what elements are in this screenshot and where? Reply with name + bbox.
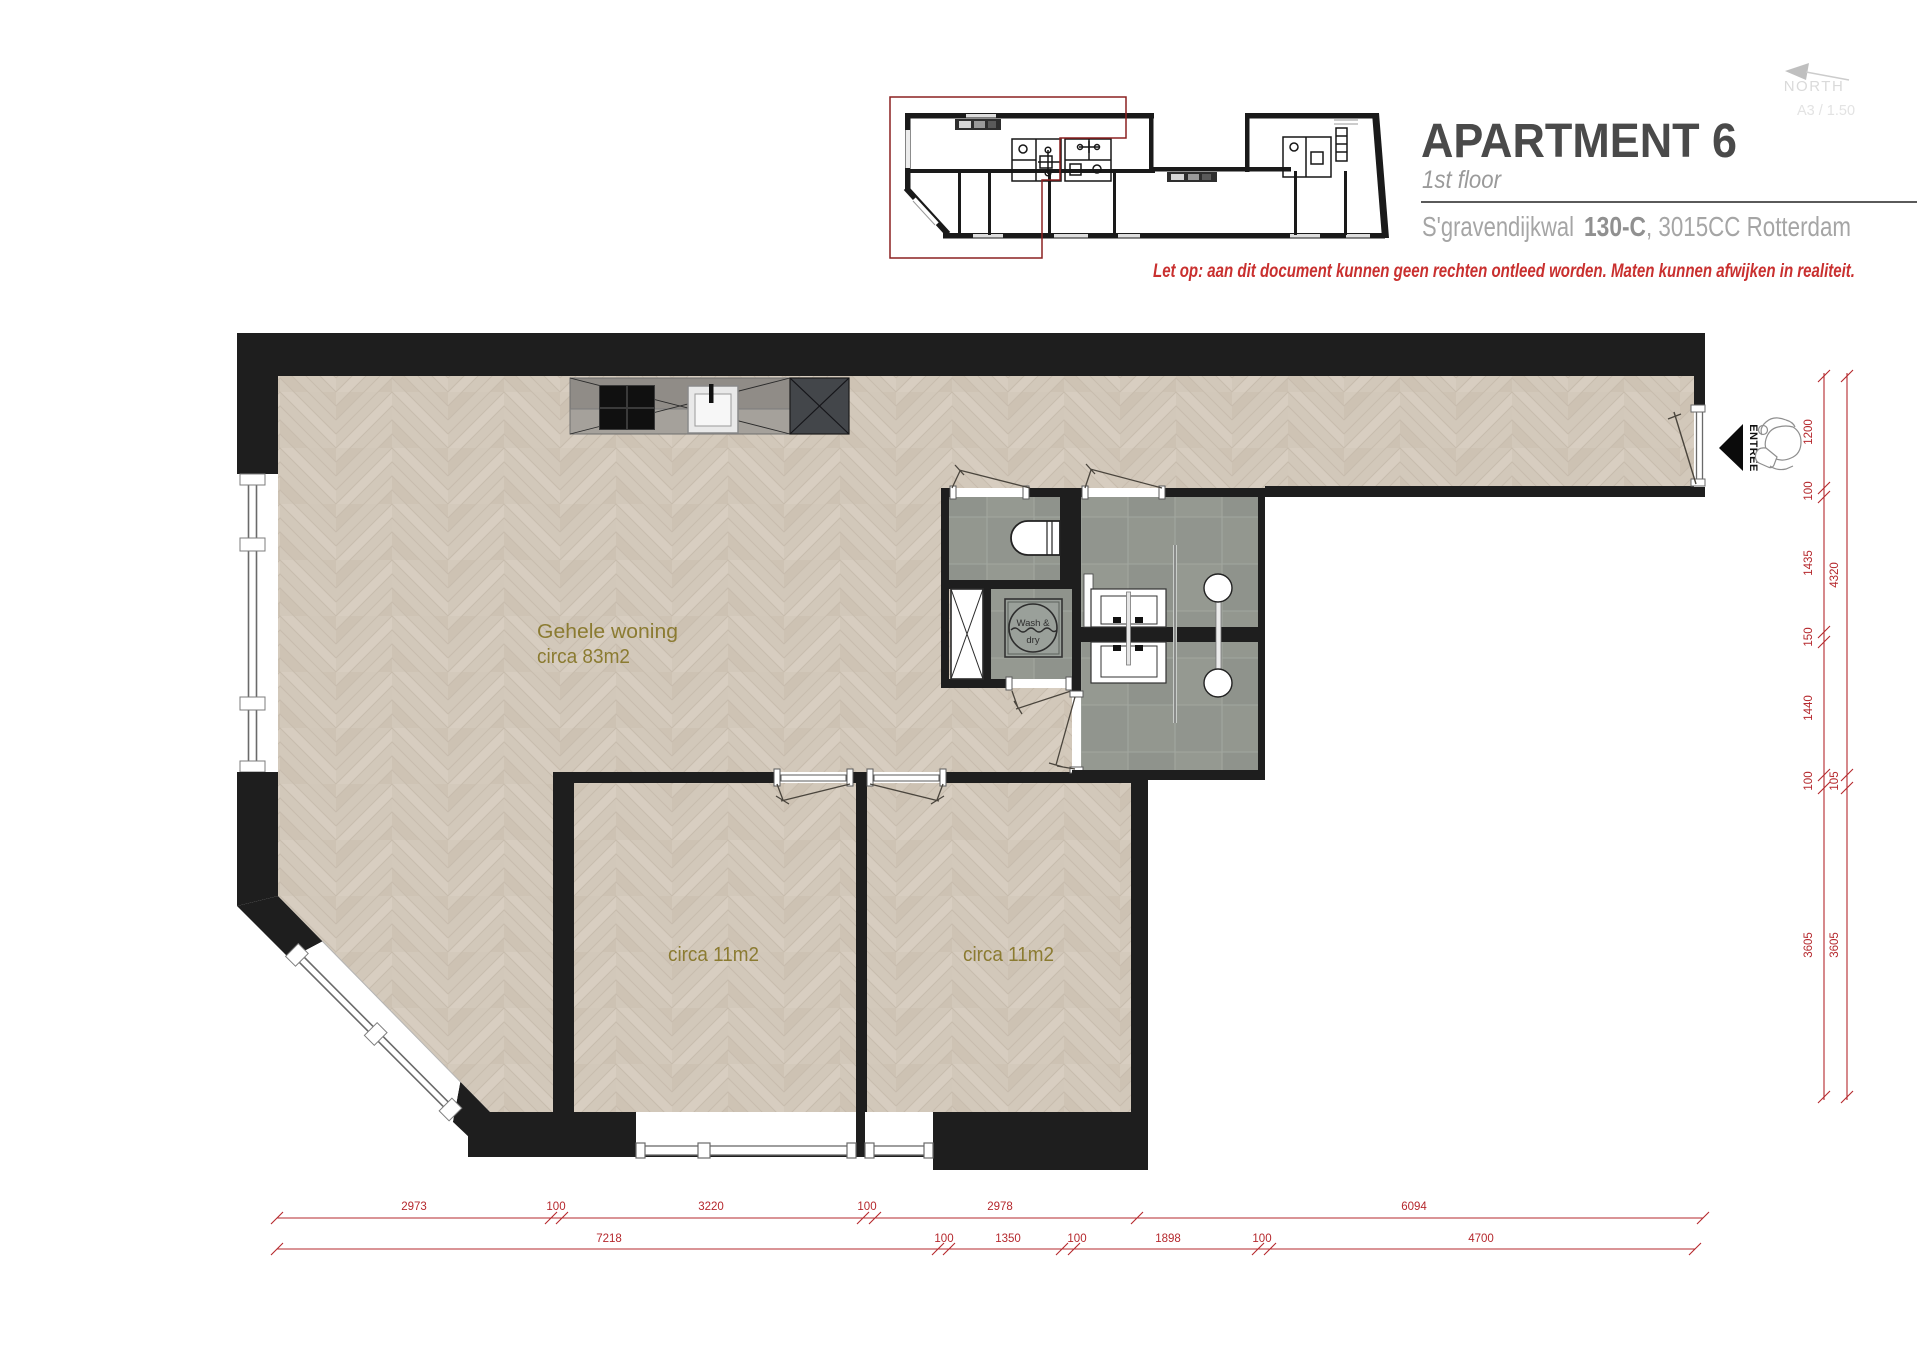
svg-text:NORTH: NORTH — [1784, 78, 1845, 95]
svg-text:2978: 2978 — [987, 1201, 1013, 1213]
svg-text:1898: 1898 — [1155, 1233, 1181, 1245]
svg-text:1350: 1350 — [995, 1233, 1021, 1245]
svg-text:APARTMENT 6: APARTMENT 6 — [1421, 115, 1737, 168]
svg-text:A3 / 1.50: A3 / 1.50 — [1797, 103, 1855, 119]
svg-text:130-C: 130-C — [1584, 211, 1646, 242]
svg-text:100: 100 — [1252, 1233, 1271, 1245]
svg-text:circa 11m2: circa 11m2 — [668, 943, 759, 966]
svg-text:circa 83m2: circa 83m2 — [537, 645, 630, 668]
svg-text:100: 100 — [1067, 1233, 1086, 1245]
svg-text:circa 11m2: circa 11m2 — [963, 943, 1054, 966]
svg-text:7218: 7218 — [596, 1233, 622, 1245]
svg-text:Gehele woning: Gehele woning — [537, 620, 678, 643]
svg-text:3605: 3605 — [1829, 932, 1841, 958]
svg-text:100: 100 — [1803, 481, 1815, 500]
svg-text:1200: 1200 — [1803, 419, 1815, 445]
svg-text:100: 100 — [1803, 771, 1815, 790]
svg-text:4320: 4320 — [1829, 562, 1841, 588]
svg-text:, 3015CC Rotterdam: , 3015CC Rotterdam — [1646, 211, 1851, 242]
svg-text:Let op: aan dit document kunne: Let op: aan dit document kunnen geen rec… — [1153, 260, 1855, 282]
svg-text:105: 105 — [1829, 771, 1841, 790]
svg-text:3220: 3220 — [698, 1201, 724, 1213]
svg-text:2973: 2973 — [401, 1201, 427, 1213]
svg-text:Wash &: Wash & — [1017, 618, 1051, 629]
svg-text:1440: 1440 — [1803, 695, 1815, 721]
svg-text:ENTREE: ENTREE — [1747, 424, 1759, 472]
svg-text:dry: dry — [1026, 635, 1039, 646]
svg-text:4700: 4700 — [1468, 1233, 1494, 1245]
svg-text:6094: 6094 — [1401, 1201, 1427, 1213]
svg-text:100: 100 — [857, 1201, 876, 1213]
svg-text:1435: 1435 — [1803, 550, 1815, 576]
svg-text:150: 150 — [1803, 627, 1815, 646]
svg-text:S'gravendijkwal: S'gravendijkwal — [1422, 211, 1574, 242]
svg-text:1st floor: 1st floor — [1422, 166, 1502, 194]
svg-text:100: 100 — [546, 1201, 565, 1213]
svg-text:100: 100 — [934, 1233, 953, 1245]
svg-text:3605: 3605 — [1803, 932, 1815, 958]
